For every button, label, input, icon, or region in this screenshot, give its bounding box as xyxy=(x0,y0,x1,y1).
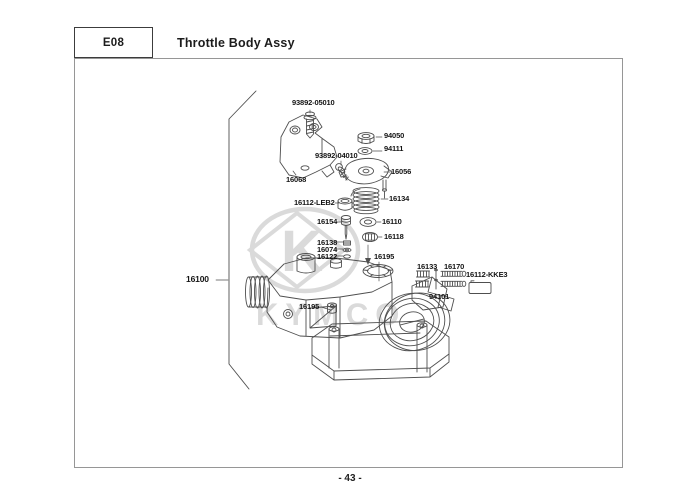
part-label-16056: 16056 xyxy=(391,168,411,176)
part-nut-94050 xyxy=(358,133,374,144)
part-label-93892-04010: 93892-04010 xyxy=(315,152,358,160)
part-seal-16118 xyxy=(363,232,378,241)
part-label-94101: 94101 xyxy=(429,293,449,301)
part-label-94111: 94111 xyxy=(384,145,403,153)
part-label-16110: 16110 xyxy=(382,218,402,226)
part-label-16100: 16100 xyxy=(186,275,209,283)
part-washer-94111 xyxy=(358,148,372,155)
part-spring-16170-b xyxy=(441,281,466,286)
part-label-16195-side: 16195 xyxy=(299,303,319,311)
part-cap-16112-LEB2 xyxy=(338,198,352,210)
part-label-16068: 16068 xyxy=(286,176,306,184)
part-spring-16138 xyxy=(344,241,351,245)
part-washer-16110 xyxy=(360,218,376,227)
part-label-94050: 94050 xyxy=(384,132,404,140)
part-bracket-16068 xyxy=(280,115,337,178)
part-label-16118: 16118 xyxy=(384,233,404,241)
part-label-16122: 16122 xyxy=(317,253,337,261)
part-label-16133: 16133 xyxy=(417,263,437,271)
part-label-16154: 16154 xyxy=(317,218,337,226)
part-label-16134: 16134 xyxy=(389,195,409,203)
part-ring-16122 xyxy=(344,255,351,258)
part-label-16170: 16170 xyxy=(444,263,464,271)
part-cam-16056 xyxy=(339,158,392,198)
part-valve-16154 xyxy=(342,216,351,240)
part-label-16112-KKE3: 16112-KKE3 xyxy=(466,271,507,279)
part-spring-16170-a xyxy=(441,271,466,276)
part-label-93892-05010: 93892-05010 xyxy=(292,99,335,107)
part-washer-16074 xyxy=(343,248,351,252)
part-label-16195-top: 16195 xyxy=(374,253,394,261)
part-throttle-body-16100 xyxy=(246,254,457,381)
part-spring-16134 xyxy=(351,188,379,214)
part-spring-16133-a xyxy=(417,271,430,277)
parts-diagram xyxy=(0,0,700,495)
assembly-bracket-line xyxy=(229,91,256,389)
part-label-16112-LEB2: 16112-LEB2 xyxy=(294,199,335,207)
part-gasket-16112-KKE3 xyxy=(469,281,491,294)
